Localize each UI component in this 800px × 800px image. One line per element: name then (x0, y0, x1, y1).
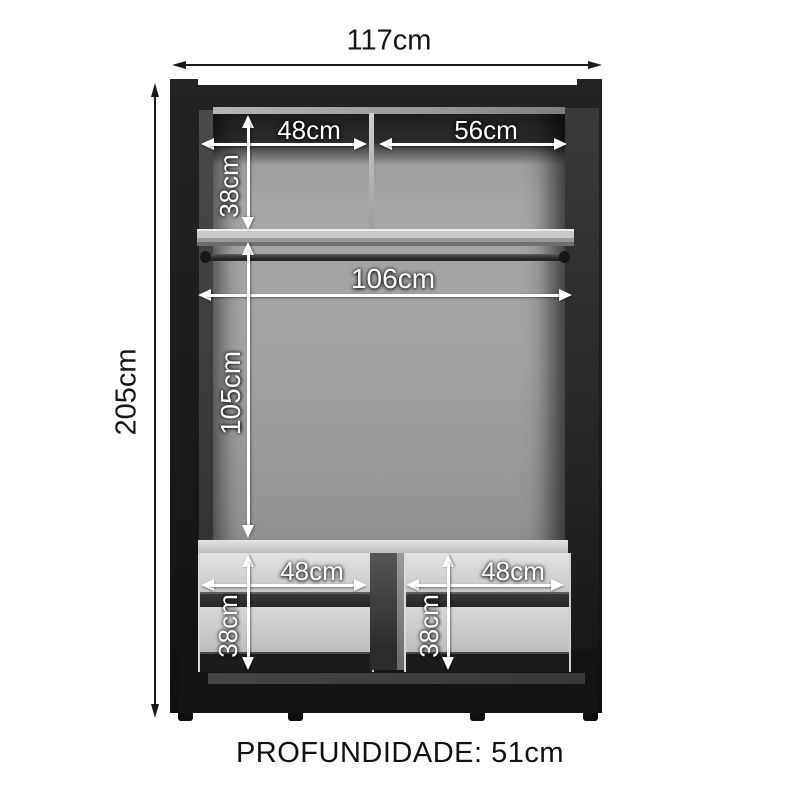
foot-3 (470, 713, 485, 721)
foot-2 (288, 713, 303, 721)
dim-label-top-left-width: 48cm (277, 117, 341, 143)
dim-label-drawer-left-height: 38cm (215, 594, 241, 658)
dim-label-drawer-left-width: 48cm (280, 558, 344, 584)
rod-endcap-right (559, 251, 570, 263)
dim-label-rod-width: 106cm (351, 265, 435, 293)
top-section-divider (369, 113, 374, 231)
drawer-center-divider-edge (397, 553, 404, 670)
wardrobe-dimension-diagram: 48cm 56cm 38cm 106cm 105cm 48cm 48cm 38c… (0, 0, 800, 800)
top-panel-edge (213, 107, 565, 114)
dim-label-top-right-width: 56cm (454, 117, 518, 143)
dim-line-drawer-left-height (242, 554, 254, 670)
depth-label: PROFUNDIDADE: 51cm (0, 737, 800, 770)
dim-label-drawer-right-height: 38cm (416, 594, 442, 658)
dim-label-overall-width: 117cm (347, 27, 432, 56)
frame-top-notch (198, 79, 577, 85)
foot-1 (178, 713, 193, 721)
dim-label-drawer-right-width: 48cm (481, 558, 545, 584)
foot-4 (583, 713, 598, 721)
base-panel-edge (208, 673, 585, 684)
rod-endcap-left (200, 251, 211, 263)
dim-line-overall-width (172, 59, 602, 71)
hanging-rod (207, 254, 563, 261)
drawer-unit-top (198, 540, 568, 554)
dim-label-main-height: 105cm (217, 351, 245, 435)
dim-label-overall-height: 205cm (113, 348, 142, 435)
dim-label-top-section-height: 38cm (216, 154, 242, 218)
dim-line-overall-height (149, 83, 161, 718)
